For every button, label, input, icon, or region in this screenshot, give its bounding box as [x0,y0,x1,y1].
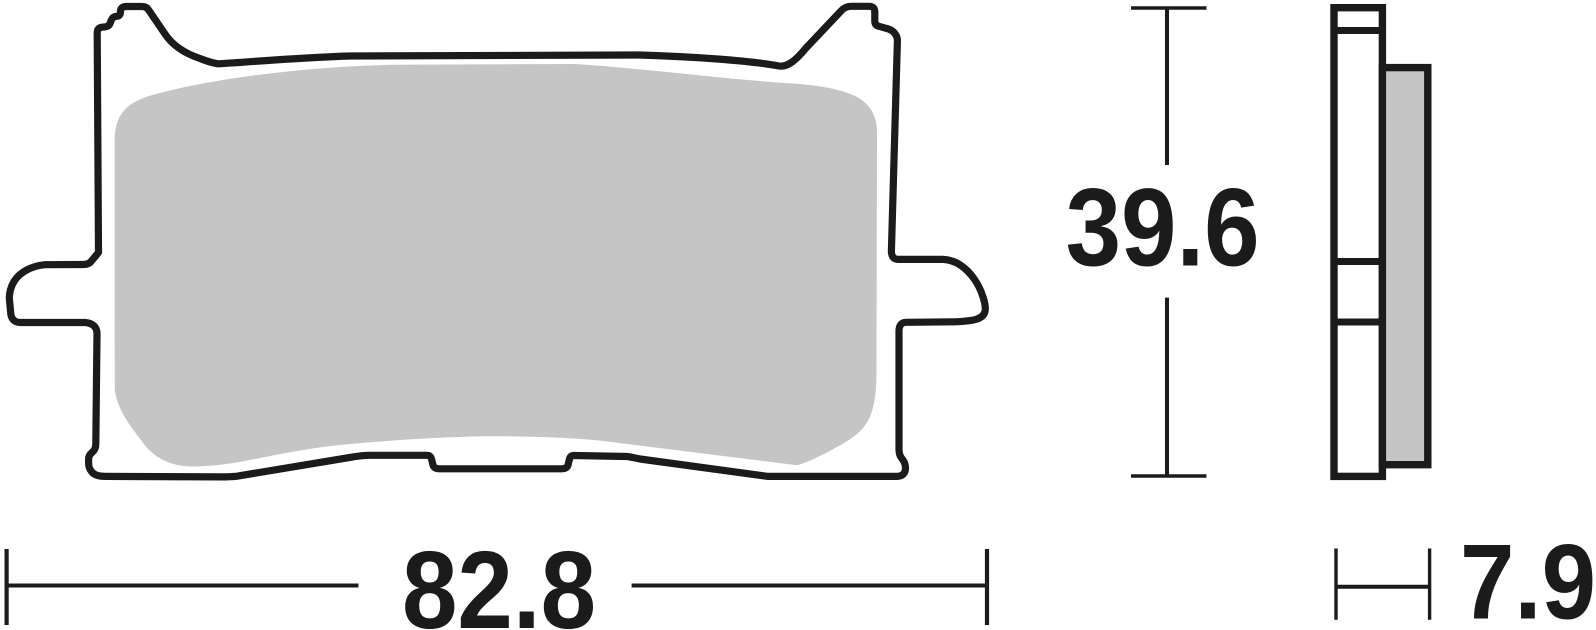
svg-text:7.9: 7.9 [1460,522,1596,630]
svg-text:39.6: 39.6 [1066,167,1260,290]
svg-text:82.8: 82.8 [402,529,596,630]
